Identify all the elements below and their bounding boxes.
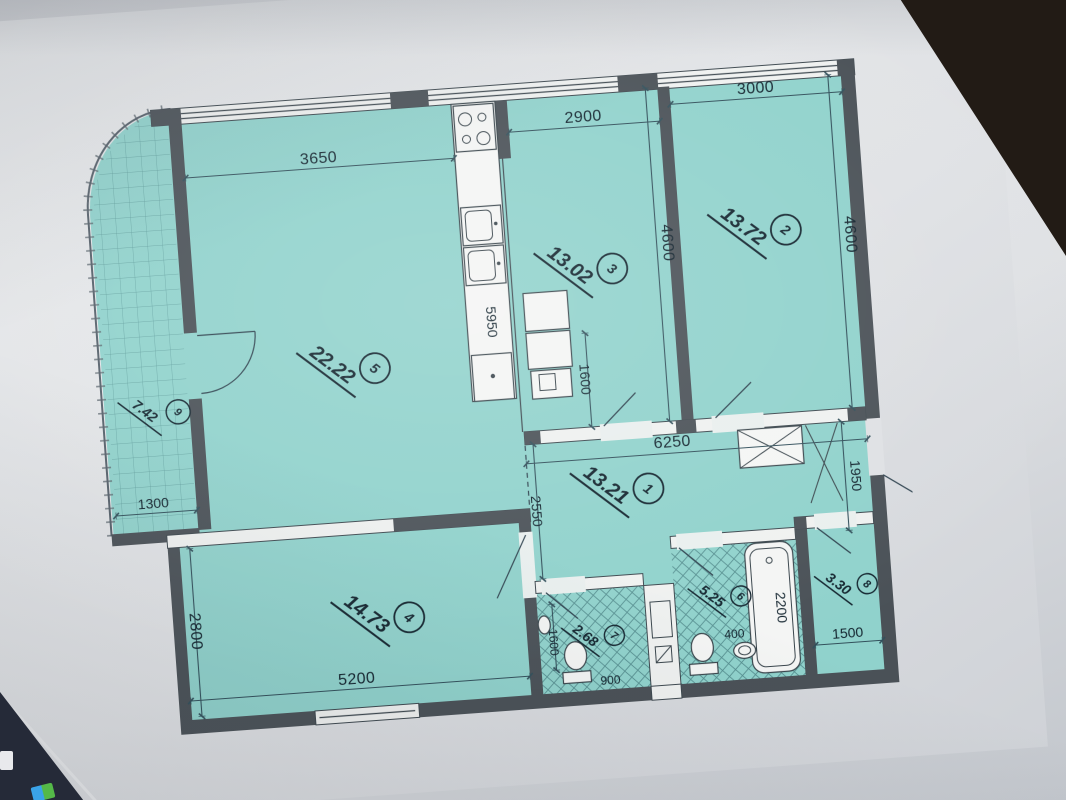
- dim-tub-length: 2200: [773, 591, 791, 623]
- floor-plan: 3650 2900 3000 4600 4600 5950 1600 6250 …: [61, 27, 928, 755]
- dim-balcony-width: 1300: [137, 494, 169, 512]
- dim-room3-top: 2900: [564, 107, 602, 127]
- room8-door-opening: [814, 511, 857, 530]
- dim-wc-bottom: 900: [600, 673, 621, 688]
- dim-kitchen-run: 5950: [483, 306, 501, 338]
- taskbar-app-icon: [0, 751, 13, 770]
- dim-entry-side: 1950: [847, 460, 865, 492]
- dim-room4-bottom: 5200: [338, 669, 376, 689]
- wardrobe-icon: [738, 426, 805, 469]
- dim-room2-side: 4600: [840, 215, 860, 253]
- dim-room4-side: 2800: [185, 612, 205, 650]
- wc-door-opening: [541, 576, 586, 595]
- dim-hall-left: 2550: [528, 495, 546, 527]
- dim-wc-side: 1600: [546, 628, 562, 656]
- dim-room3-side: 4600: [657, 224, 677, 262]
- dim-hall-width: 6250: [653, 433, 691, 453]
- dim-room5-top: 3650: [299, 149, 337, 169]
- dim-room2-top: 3000: [736, 79, 774, 99]
- dim-room8-bottom: 1500: [832, 624, 864, 642]
- floor-plan-svg: 3650 2900 3000 4600 4600 5950 1600 6250 …: [61, 27, 928, 755]
- bath-door-opening: [676, 531, 723, 550]
- stove-icon: [453, 103, 496, 152]
- photo-of-screen: 3650 2900 3000 4600 4600 5950 1600 6250 …: [0, 0, 1066, 800]
- dim-room3-niche: 1600: [576, 363, 594, 395]
- dim-bath-niche: 400: [724, 626, 745, 641]
